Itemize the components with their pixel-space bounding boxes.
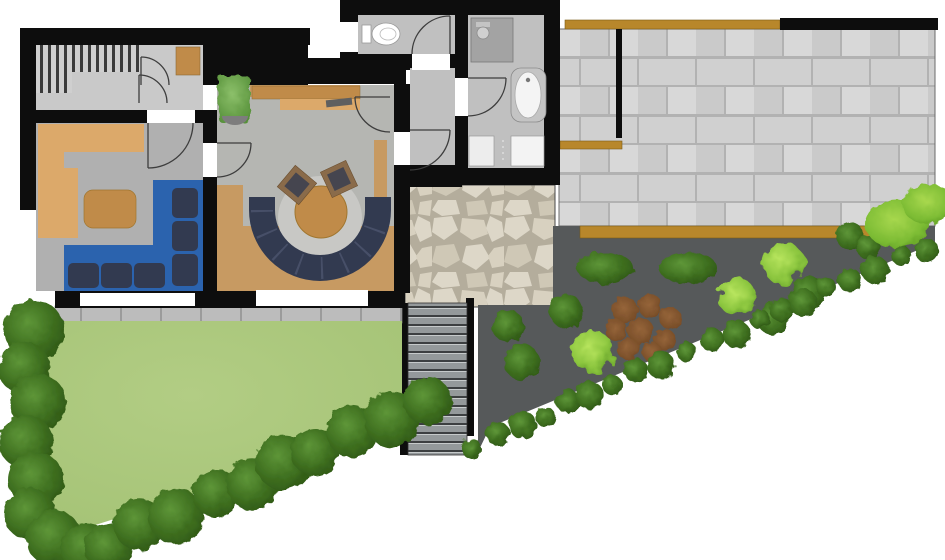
living-wood-left-strip: [217, 185, 243, 291]
sofa-cushion: [68, 263, 99, 288]
paved-strip: [55, 306, 402, 323]
lounge-wood-step: [64, 168, 78, 238]
garden-hedge-tuft: [891, 246, 911, 266]
mulch-circle: [617, 338, 639, 360]
wc-window: [340, 22, 358, 52]
light-shrub: [571, 330, 613, 372]
garden-hedge-tuft: [677, 342, 697, 362]
terrace-divider-wall: [616, 29, 622, 138]
mulch-circle: [605, 319, 627, 341]
garden-hedge-tuft: [462, 439, 482, 459]
sofa-cushion: [134, 263, 165, 288]
timber-beam-bottom: [580, 226, 870, 238]
round-bush: [504, 344, 540, 380]
bath-door-opening: [455, 78, 468, 116]
sofa-cushion: [172, 254, 198, 286]
round-bush: [492, 310, 524, 342]
wall-bath-bottom: [455, 168, 560, 185]
terrace-black-wall: [780, 18, 938, 30]
garden-hedge-tuft: [838, 268, 862, 292]
sideboard: [252, 86, 360, 99]
toilet-tank: [362, 25, 371, 43]
floor-plan-drawing: [0, 0, 945, 560]
garden-hedge-tuft: [723, 320, 751, 348]
garden-hedge-tuft: [750, 309, 770, 329]
garden-hedge-tuft: [486, 422, 510, 446]
hall-dresser: [176, 47, 200, 75]
oval-bush: [577, 252, 633, 284]
floor-plan-canvas: [0, 0, 945, 560]
hedge-bush: [403, 377, 451, 425]
wall-bath-top: [340, 0, 560, 15]
flagstone-patio: [405, 185, 555, 307]
bathtub-drain: [526, 78, 530, 82]
wall-living-right-lower: [394, 183, 410, 293]
paver-terrace: [559, 18, 938, 226]
wall-left: [20, 28, 36, 210]
south-window-a: [80, 293, 195, 306]
garden-hedge-tuft: [861, 256, 889, 284]
lounge-living-door-opening: [203, 143, 217, 177]
light-shrub: [718, 278, 756, 316]
vestibule-floor: [410, 68, 455, 165]
garden-hedge-tuft: [602, 375, 622, 395]
paver-surface: [559, 29, 935, 226]
interior-stairs-left: [36, 45, 72, 93]
garden-hedge-tuft: [816, 277, 836, 297]
mulch-circle: [659, 307, 681, 329]
shower-arm: [476, 22, 490, 27]
wall-living-right-upper: [394, 84, 410, 132]
wall-vestibule-bottom: [394, 165, 462, 187]
garden-hedge-tuft: [700, 328, 724, 352]
washing-machine: [511, 136, 544, 166]
timber-beam-top: [565, 20, 780, 29]
washing-machine: [469, 136, 494, 166]
sofa-cushion: [101, 263, 132, 288]
wall-lounge-top-a: [35, 110, 147, 123]
wc-door-opening: [412, 54, 450, 70]
potted-plant: [218, 76, 250, 122]
south-window-b: [256, 290, 368, 306]
garden-hedge-tuft: [509, 411, 537, 439]
mulch-circle: [638, 294, 662, 318]
garden-hedge-tuft: [789, 289, 817, 317]
stair-treads: [408, 303, 467, 455]
oval-bush: [659, 252, 717, 284]
round-bush: [549, 294, 583, 328]
garden-hedge-tuft: [576, 381, 604, 409]
sofa-cushion: [172, 188, 198, 218]
timber-beam-left: [560, 141, 622, 149]
garden-hedge-tuft: [624, 358, 648, 382]
wall-top: [20, 28, 310, 45]
light-shrub: [762, 242, 804, 284]
lounge-side-table: [84, 190, 136, 228]
garden-hedge-tuft: [647, 351, 675, 379]
shower-head-icon: [477, 27, 489, 39]
lounge-wood-left: [38, 124, 64, 238]
garden-hedge-tuft: [915, 238, 939, 262]
wall-lounge-living: [203, 110, 217, 295]
sofa-cushion: [172, 221, 198, 251]
garden-hedge-tuft: [536, 407, 556, 427]
